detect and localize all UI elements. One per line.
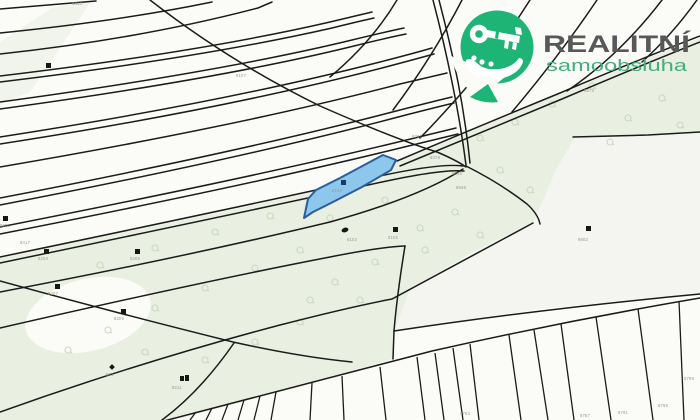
parcel-label: 8105 <box>388 235 399 240</box>
parcel-label: 8635 <box>452 171 463 176</box>
parcel-label: 8791 <box>618 410 629 415</box>
vegetation-symbol-dot <box>338 284 340 286</box>
building-marker <box>55 284 60 289</box>
parcel-label: 8802 <box>578 237 589 242</box>
vegetation-symbol-dot <box>218 234 220 236</box>
parcel-label: 8795 <box>658 403 669 408</box>
parcel-label: 8417 <box>20 240 31 245</box>
building-marker <box>180 376 184 381</box>
building-marker <box>46 63 51 68</box>
vegetation-symbol-dot <box>111 332 113 334</box>
parcel-label: 8737 <box>412 134 423 139</box>
parcel-label: 8596 <box>456 185 467 190</box>
parcel-label: 8107 <box>236 73 247 78</box>
vegetation-symbol-dot <box>423 230 425 232</box>
vegetation-symbol-dot <box>303 324 305 326</box>
parcel-label: 8205 <box>130 256 141 261</box>
parcel-label: 8313 <box>72 1 83 6</box>
parcel-label: 8379 <box>430 155 441 160</box>
brand-name: REALITNÍ <box>543 30 692 58</box>
vegetation-symbol-dot <box>555 106 557 108</box>
vegetation-symbol-dot <box>273 218 275 220</box>
vegetation-symbol-dot <box>303 252 305 254</box>
parcel-label: 8207 <box>48 291 59 296</box>
building-marker <box>185 375 189 381</box>
vegetation-symbol-dot <box>158 250 160 252</box>
parcel-label: 8783 <box>460 411 471 416</box>
building-marker <box>393 227 398 232</box>
parcel-label: 8211 <box>172 385 182 390</box>
parcel-label: 8573 <box>584 88 595 93</box>
vegetation-symbol-dot <box>533 192 535 194</box>
parcel-label: 8209 <box>114 316 125 321</box>
vegetation-symbol-dot <box>103 267 105 269</box>
building-marker <box>121 309 126 314</box>
vegetation-symbol-dot <box>665 100 667 102</box>
vegetation-symbol-dot <box>483 237 485 239</box>
vegetation-symbol-dot <box>595 88 597 90</box>
parcel-label: 8106 <box>332 188 343 193</box>
parcel-label: 8799 <box>684 376 695 381</box>
vegetation-symbol-dot <box>148 354 150 356</box>
vegetation-symbol-dot <box>208 362 210 364</box>
vegetation-symbol-dot <box>428 252 430 254</box>
map-container[interactable]: 8313810787378379863585968573880281068103… <box>0 0 700 420</box>
building-marker <box>586 226 591 231</box>
parcel-label: 8787 <box>580 413 591 418</box>
building-marker <box>3 216 8 221</box>
vegetation-symbol-dot <box>483 140 485 142</box>
vegetation-symbol-dot <box>458 214 460 216</box>
highlighted-parcel-marker <box>341 180 346 185</box>
parcel-label: 861 <box>106 372 114 377</box>
parcel-label: 8203 <box>38 256 49 261</box>
vegetation-symbol-dot <box>503 172 505 174</box>
vegetation-symbol-dot <box>71 352 73 354</box>
parcel-label: 8103 <box>347 237 358 242</box>
vegetation-symbol-dot <box>613 144 615 146</box>
vegetation-symbol-dot <box>631 120 633 122</box>
vegetation-symbol-dot <box>258 344 260 346</box>
vegetation-symbol-dot <box>363 302 365 304</box>
parcel-label: 8201 <box>0 223 11 228</box>
vegetation-symbol-dot <box>683 127 685 129</box>
vegetation-symbol-dot <box>208 290 210 292</box>
vegetation-symbol-dot <box>378 264 380 266</box>
vegetation-symbol-dot <box>518 124 520 126</box>
cadastral-map: 8313810787378379863585968573880281068103… <box>0 0 700 420</box>
brand-subtitle: samoobsluha <box>546 56 688 75</box>
vegetation-symbol-dot <box>313 302 315 304</box>
building-marker <box>44 249 49 254</box>
building-marker <box>135 249 140 254</box>
vegetation-symbol-dot <box>158 310 160 312</box>
